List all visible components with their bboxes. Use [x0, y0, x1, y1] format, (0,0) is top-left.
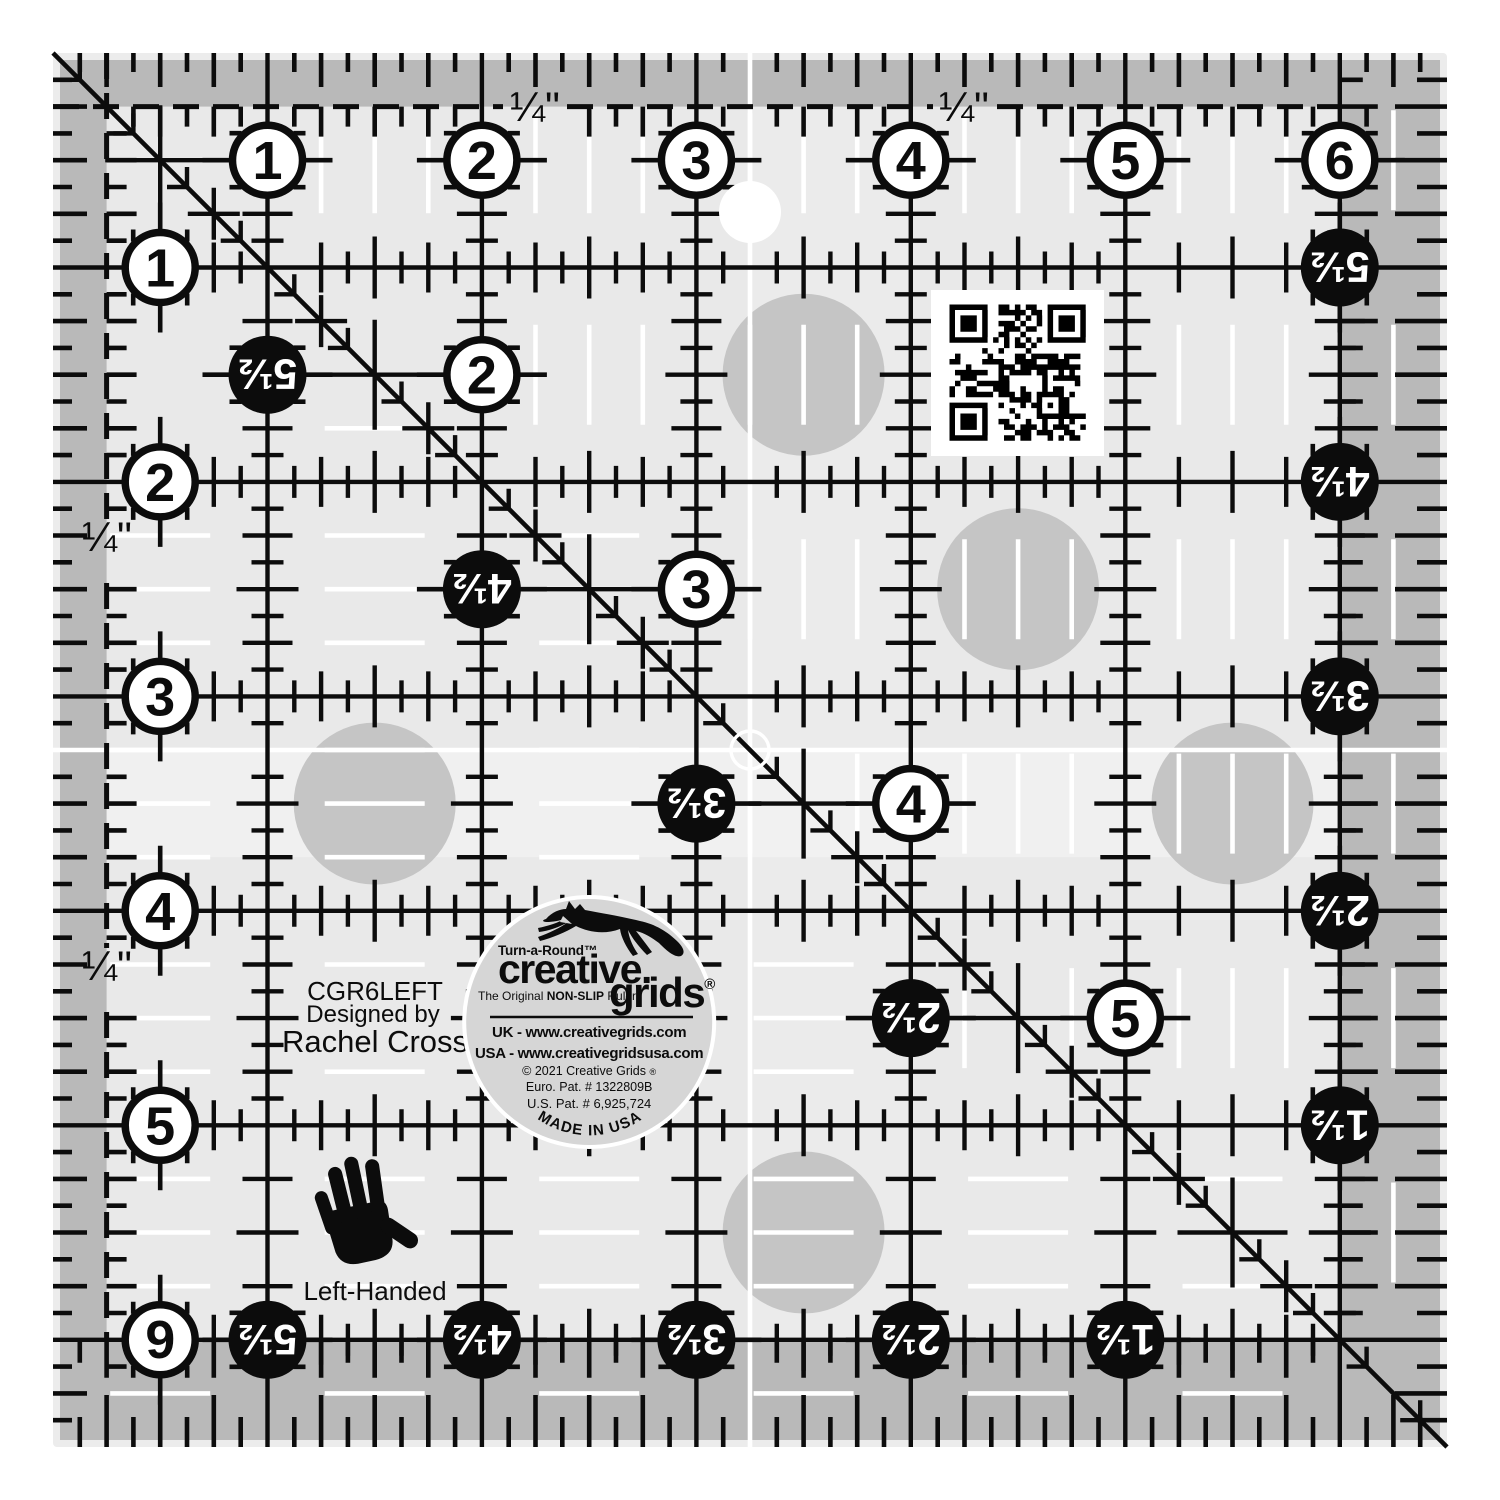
svg-text:5½: 5½: [238, 1315, 298, 1363]
svg-text:3½: 3½: [667, 1315, 727, 1363]
svg-text:5: 5: [1110, 989, 1140, 1049]
svg-text:¼": ¼": [82, 942, 132, 989]
svg-text:2: 2: [145, 453, 175, 513]
svg-text:5½: 5½: [238, 350, 298, 398]
svg-text:6: 6: [1325, 131, 1355, 191]
svg-text:4½: 4½: [452, 1315, 512, 1363]
svg-text:Euro. Pat. # 1322809B: Euro. Pat. # 1322809B: [526, 1080, 652, 1094]
svg-text:4½: 4½: [452, 564, 512, 612]
svg-text:3½: 3½: [1310, 671, 1370, 719]
svg-text:1½: 1½: [1095, 1315, 1155, 1363]
svg-text:2: 2: [467, 346, 497, 406]
svg-text:The Original NON-SLIP Ruler: The Original NON-SLIP Ruler: [478, 989, 636, 1003]
svg-text:2½: 2½: [881, 1315, 941, 1363]
svg-text:1: 1: [252, 131, 282, 191]
svg-text:Left-Handed: Left-Handed: [303, 1276, 446, 1306]
svg-text:3: 3: [145, 667, 175, 727]
svg-text:4½: 4½: [1310, 457, 1370, 505]
svg-text:© 2021 Creative Grids ®: © 2021 Creative Grids ®: [522, 1064, 656, 1078]
svg-text:Rachel Cross: Rachel Cross: [282, 1024, 468, 1059]
svg-text:4: 4: [145, 882, 175, 942]
svg-text:2½: 2½: [1310, 886, 1370, 934]
svg-text:USA - www.creativegridsusa.com: USA - www.creativegridsusa.com: [475, 1045, 703, 1062]
svg-text:1½: 1½: [1310, 1100, 1370, 1148]
svg-text:U.S. Pat. # 6,925,724: U.S. Pat. # 6,925,724: [527, 1096, 651, 1111]
svg-text:¼": ¼": [939, 83, 989, 130]
svg-text:1: 1: [145, 239, 175, 299]
svg-text:5: 5: [145, 1096, 175, 1156]
svg-text:5½: 5½: [1310, 243, 1370, 291]
svg-text:4: 4: [896, 775, 926, 835]
svg-text:2½: 2½: [881, 993, 941, 1041]
svg-text:¼": ¼": [510, 83, 560, 130]
svg-text:2: 2: [467, 131, 497, 191]
svg-text:5: 5: [1110, 131, 1140, 191]
svg-text:6: 6: [145, 1309, 175, 1369]
svg-text:3½: 3½: [667, 779, 727, 827]
svg-text:3: 3: [681, 131, 711, 191]
svg-text:¼": ¼": [82, 513, 132, 560]
svg-text:4: 4: [896, 131, 926, 191]
svg-text:UK - www.creativegrids.com: UK - www.creativegrids.com: [492, 1024, 686, 1041]
svg-text:3: 3: [681, 560, 711, 620]
